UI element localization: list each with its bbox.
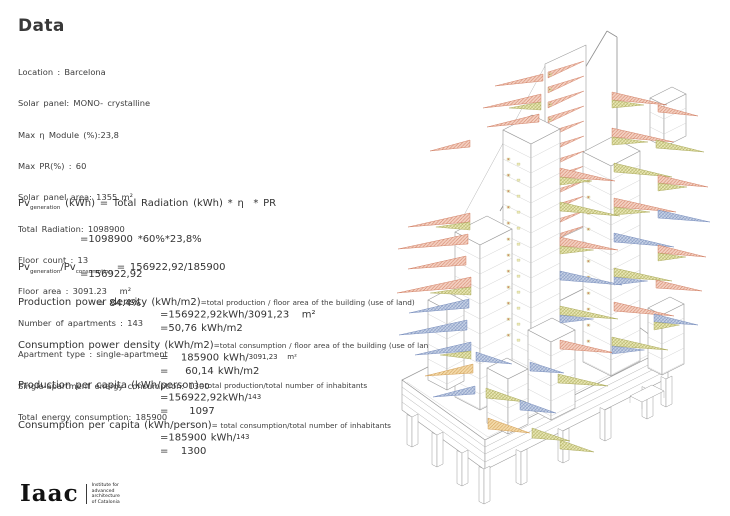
metric-consumption-per-capita: Consumption per capita (kWh/person)= tot… [18, 420, 391, 458]
data-sheet-page: Data Location : Barcelona Solar panel: M… [0, 0, 730, 516]
pv-generation-equation: Pvgeneration (kWh) = Total Radiation (kW… [18, 198, 276, 211]
building-axonometric-drawing [395, 0, 730, 516]
metric-value-line: =185900 kWh/143 [160, 431, 391, 445]
metric-result-line: = 1300 [160, 445, 391, 458]
metric-definition: =total production / floor area of the bu… [201, 298, 415, 307]
metric-production-per-capita: Production per capita (kWh/person)=total… [18, 380, 367, 418]
metric-label: Production power density (kWh/m2) [18, 297, 201, 308]
metric-result-line: =50,76 kWh/m2 [160, 322, 415, 335]
pv-ratio-equation: Pvgeneration/Pvconsumption = 156922,92/1… [18, 262, 225, 275]
spec-line: Max η Module (%):23,8 [18, 130, 210, 140]
metric-definition: = total consumption/total number of inha… [212, 421, 391, 430]
page-title: Data [18, 16, 65, 36]
metric-value-line: =156922,92kWh/3091,23 m² [160, 308, 415, 322]
iaac-logo: Iaac Institute for advanced architecture… [20, 483, 120, 505]
metric-consumption-power-density: Consumption power density (kWh/m2)=total… [18, 340, 436, 378]
metric-label: Consumption power density (kWh/m2) [18, 340, 214, 351]
metric-definition: =total production/total number of inhabi… [199, 381, 368, 390]
metric-label: Consumption per capita (kWh/person) [18, 420, 212, 431]
logo-wordmark: Iaac [20, 484, 79, 504]
spec-line: Location : Barcelona [18, 67, 210, 77]
spec-line: Solar panel: MONO- crystalline [18, 98, 210, 108]
metric-label: Production per capita (kWh/person) [18, 380, 199, 391]
logo-divider [86, 484, 87, 504]
metric-production-power-density: Production power density (kWh/m2)=total … [18, 297, 415, 335]
metric-result-line: = 1097 [160, 405, 367, 418]
metric-value-line: =156922,92kWh/143 [160, 391, 367, 405]
logo-tagline: Institute for advanced architecture of C… [92, 483, 120, 505]
spec-line: Max PR(%) : 60 [18, 161, 210, 171]
